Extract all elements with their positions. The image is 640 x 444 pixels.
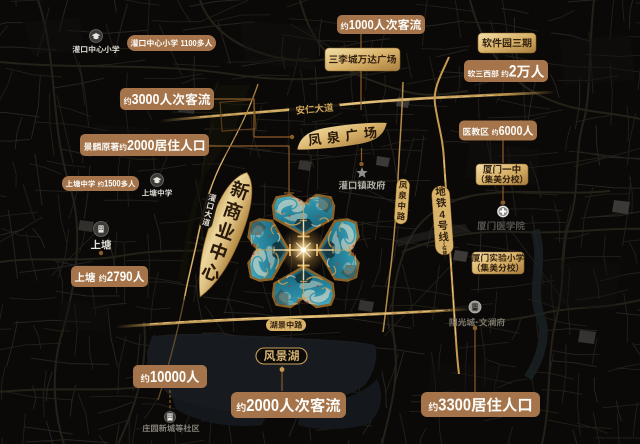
svg-text:10000: 10000 xyxy=(150,369,186,386)
svg-text:3300: 3300 xyxy=(438,395,471,415)
svg-text:6000: 6000 xyxy=(499,123,523,138)
svg-text:2000: 2000 xyxy=(127,138,154,154)
svg-text:4: 4 xyxy=(439,209,446,221)
svg-text:1000: 1000 xyxy=(349,17,374,32)
svg-text:2: 2 xyxy=(509,63,517,81)
svg-text:1500: 1500 xyxy=(104,179,121,189)
svg-text:3000: 3000 xyxy=(132,92,160,108)
svg-text:1100: 1100 xyxy=(181,38,197,48)
svg-text:2790: 2790 xyxy=(107,269,133,284)
svg-text:·: · xyxy=(475,318,479,328)
svg-text:2000: 2000 xyxy=(246,395,279,415)
